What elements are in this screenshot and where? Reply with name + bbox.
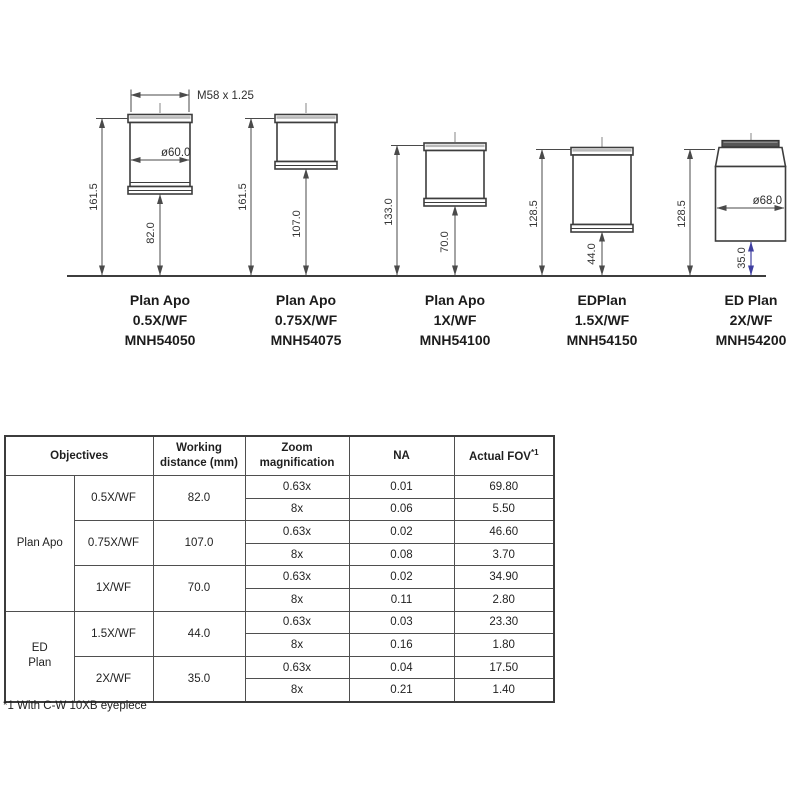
cell-fov: 34.90 [454,566,554,589]
caption-magnification: 1.5X/WF [575,312,630,328]
cell-group-plan-apo: Plan Apo [5,476,74,612]
caption-0.5x: Plan Apo 0.5X/WF MNH54050 [125,292,196,348]
cell-na: 0.08 [349,543,454,566]
objective-drawing-0.75x: 161.5 107.0 [237,103,337,275]
objective-drawing-1.5x: 128.5 44.0 [528,137,633,275]
cell-fov: 46.60 [454,521,554,544]
caption-model-number: MNH54050 [125,332,196,348]
objective-dark-cap [722,141,779,148]
cell-na: 0.16 [349,634,454,657]
working-distance-label: 107.0 [291,210,303,238]
working-distance-label: 35.0 [736,247,748,268]
caption-series: Plan Apo [276,292,336,308]
cell-zoom: 0.63x [245,611,349,634]
height-dimension-label: 128.5 [676,200,688,228]
page-background: M58 x 1.25 161.5 ø60.0 82.0 161.5 [0,0,800,800]
caption-series: EDPlan [577,292,626,308]
cell-zoom: 0.63x [245,521,349,544]
cell-na: 0.04 [349,656,454,679]
objective-drawing-1x: 133.0 70.0 [383,132,486,275]
objective-body [426,151,484,199]
cell-na: 0.21 [349,679,454,702]
table-row: ED Plan 1.5X/WF 44.0 0.63x 0.03 23.30 [5,611,554,634]
cell-fov: 5.50 [454,498,554,521]
fov-footnote-marker: *1 [531,448,539,457]
dimension-diagram: M58 x 1.25 161.5 ø60.0 82.0 161.5 [0,0,800,380]
cell-zoom: 0.63x [245,656,349,679]
cell-mag: 0.5X/WF [74,476,153,521]
caption-magnification: 1X/WF [434,312,477,328]
cell-working-distance: 107.0 [153,521,245,566]
header-zoom-magnification: Zoom magnification [245,436,349,476]
caption-magnification: 2X/WF [730,312,773,328]
objective-body [277,123,335,162]
objective-drawing-2x: 128.5 ø68.0 35.0 [676,133,786,275]
working-distance-label: 44.0 [586,243,598,264]
cell-fov: 1.40 [454,679,554,702]
cell-zoom: 8x [245,498,349,521]
cell-fov: 1.80 [454,634,554,657]
caption-magnification: 0.5X/WF [133,312,188,328]
cell-working-distance: 35.0 [153,656,245,702]
caption-2x: ED Plan 2X/WF MNH54200 [716,292,787,348]
cell-zoom: 8x [245,634,349,657]
spec-table: Objectives Working distance (mm) Zoom ma… [4,435,555,703]
thread-dimension-label: M58 x 1.25 [197,90,254,102]
caption-0.75x: Plan Apo 0.75X/WF MNH54075 [271,292,342,348]
diameter-dimension-label: ø68.0 [753,195,782,207]
cell-fov: 17.50 [454,656,554,679]
header-row: Objectives Working distance (mm) Zoom ma… [5,436,554,476]
caption-1x: Plan Apo 1X/WF MNH54100 [420,292,491,348]
table-row: 1X/WF 70.0 0.63x 0.02 34.90 [5,566,554,589]
cell-zoom: 0.63x [245,566,349,589]
cell-zoom: 0.63x [245,476,349,499]
header-actual-fov: Actual FOV*1 [454,436,554,476]
height-dimension-label: 133.0 [383,198,395,226]
height-dimension-label: 161.5 [237,183,249,211]
cell-fov: 2.80 [454,588,554,611]
header-na: NA [349,436,454,476]
caption-model-number: MNH54075 [271,332,342,348]
cell-zoom: 8x [245,543,349,566]
objective-drawing-0.5x: M58 x 1.25 161.5 ø60.0 82.0 [88,90,254,276]
objective-captions: Plan Apo 0.5X/WF MNH54050 Plan Apo 0.75X… [125,292,787,348]
objective-shoulder [716,148,786,167]
cell-group-ed-plan: ED Plan [5,611,74,702]
cell-mag: 1X/WF [74,566,153,611]
header-objectives: Objectives [5,436,153,476]
cell-na: 0.11 [349,588,454,611]
caption-model-number: MNH54100 [420,332,491,348]
objective-body [573,155,631,225]
cell-working-distance: 70.0 [153,566,245,611]
cell-na: 0.02 [349,566,454,589]
diameter-dimension-label: ø60.0 [161,147,190,159]
header-working-distance: Working distance (mm) [153,436,245,476]
cell-na: 0.01 [349,476,454,499]
caption-magnification: 0.75X/WF [275,312,338,328]
header-fov-text: Actual FOV [469,450,531,462]
caption-series: ED Plan [725,292,778,308]
group-label-text: ED Plan [23,641,57,672]
working-distance-label: 70.0 [439,231,451,252]
table-row: Plan Apo 0.5X/WF 82.0 0.63x 0.01 69.80 [5,476,554,499]
footnote: *1 With C-W 10XB eyepiece [3,700,147,712]
cell-na: 0.02 [349,521,454,544]
caption-model-number: MNH54150 [567,332,638,348]
cell-na: 0.06 [349,498,454,521]
cell-fov: 3.70 [454,543,554,566]
height-dimension-label: 128.5 [528,200,540,228]
cell-mag: 1.5X/WF [74,611,153,656]
table-row: 2X/WF 35.0 0.63x 0.04 17.50 [5,656,554,679]
caption-model-number: MNH54200 [716,332,787,348]
caption-series: Plan Apo [130,292,190,308]
cell-fov: 69.80 [454,476,554,499]
cell-mag: 2X/WF [74,656,153,702]
height-dimension-label: 161.5 [88,183,100,211]
cell-mag: 0.75X/WF [74,521,153,566]
caption-1.5x: EDPlan 1.5X/WF MNH54150 [567,292,638,348]
cell-zoom: 8x [245,679,349,702]
cell-working-distance: 82.0 [153,476,245,521]
cell-working-distance: 44.0 [153,611,245,656]
cell-fov: 23.30 [454,611,554,634]
cell-zoom: 8x [245,588,349,611]
cell-na: 0.03 [349,611,454,634]
working-distance-label: 82.0 [145,222,157,243]
caption-series: Plan Apo [425,292,485,308]
table-row: 0.75X/WF 107.0 0.63x 0.02 46.60 [5,521,554,544]
